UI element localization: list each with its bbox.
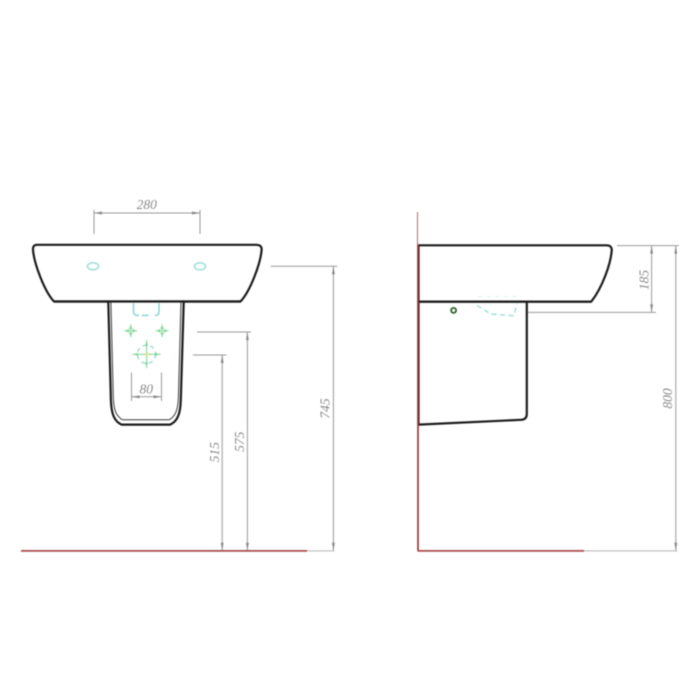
- svg-text:800: 800: [660, 388, 675, 409]
- svg-text:745: 745: [317, 398, 332, 419]
- svg-text:80: 80: [140, 381, 154, 396]
- svg-text:575: 575: [232, 431, 247, 452]
- svg-text:280: 280: [137, 197, 158, 212]
- svg-text:185: 185: [637, 270, 652, 291]
- svg-text:515: 515: [207, 442, 222, 463]
